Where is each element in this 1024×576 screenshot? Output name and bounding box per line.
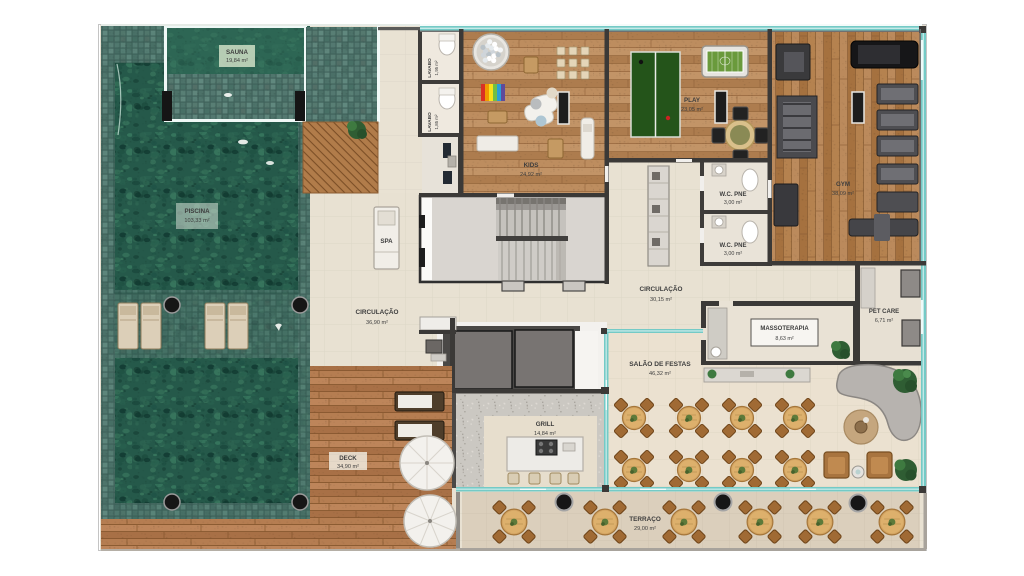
svg-text:30,15 m²: 30,15 m² (650, 297, 672, 303)
svg-text:36,90 m²: 36,90 m² (366, 320, 388, 326)
svg-text:14,84 m²: 14,84 m² (534, 431, 556, 437)
svg-text:3,00 m²: 3,00 m² (724, 251, 742, 257)
svg-text:W.C. PNE: W.C. PNE (719, 243, 746, 249)
svg-text:GYM: GYM (836, 181, 850, 188)
svg-text:29,00 m²: 29,00 m² (634, 526, 656, 532)
svg-text:24,92 m²: 24,92 m² (520, 172, 542, 178)
svg-text:DECK: DECK (339, 455, 357, 462)
svg-text:SALÃO DE FESTAS: SALÃO DE FESTAS (629, 359, 691, 368)
svg-text:KIDS: KIDS (524, 162, 539, 169)
svg-text:46,32 m²: 46,32 m² (649, 371, 671, 377)
svg-text:SAUNA: SAUNA (226, 49, 249, 56)
svg-text:GRILL: GRILL (536, 421, 555, 428)
svg-text:LAVABO: LAVABO (427, 58, 433, 78)
svg-text:CIRCULAÇÃO: CIRCULAÇÃO (356, 307, 399, 316)
svg-text:34,90 m²: 34,90 m² (337, 464, 359, 470)
svg-text:PET CARE: PET CARE (869, 309, 899, 315)
svg-text:1,85 m²: 1,85 m² (434, 114, 439, 129)
svg-text:PLAY: PLAY (684, 97, 701, 104)
svg-text:MASSOTERAPIA: MASSOTERAPIA (760, 326, 809, 332)
svg-text:8,63 m²: 8,63 m² (775, 336, 793, 342)
svg-text:LAVABO: LAVABO (427, 112, 433, 132)
svg-text:W.C. PNE: W.C. PNE (719, 192, 746, 198)
svg-text:23,05 m²: 23,05 m² (681, 107, 703, 113)
svg-text:SPA: SPA (380, 238, 393, 245)
svg-text:PISCINA: PISCINA (184, 208, 210, 215)
svg-text:38,09 m²: 38,09 m² (832, 191, 854, 197)
svg-text:6,71 m²: 6,71 m² (875, 318, 893, 324)
svg-text:TERRAÇO: TERRAÇO (629, 516, 661, 523)
svg-text:19,84 m²: 19,84 m² (226, 58, 248, 64)
svg-text:1,95 m²: 1,95 m² (434, 60, 439, 75)
svg-text:CIRCULAÇÃO: CIRCULAÇÃO (640, 284, 683, 293)
svg-text:3,00 m²: 3,00 m² (724, 200, 742, 206)
svg-text:103,33 m²: 103,33 m² (184, 218, 209, 224)
